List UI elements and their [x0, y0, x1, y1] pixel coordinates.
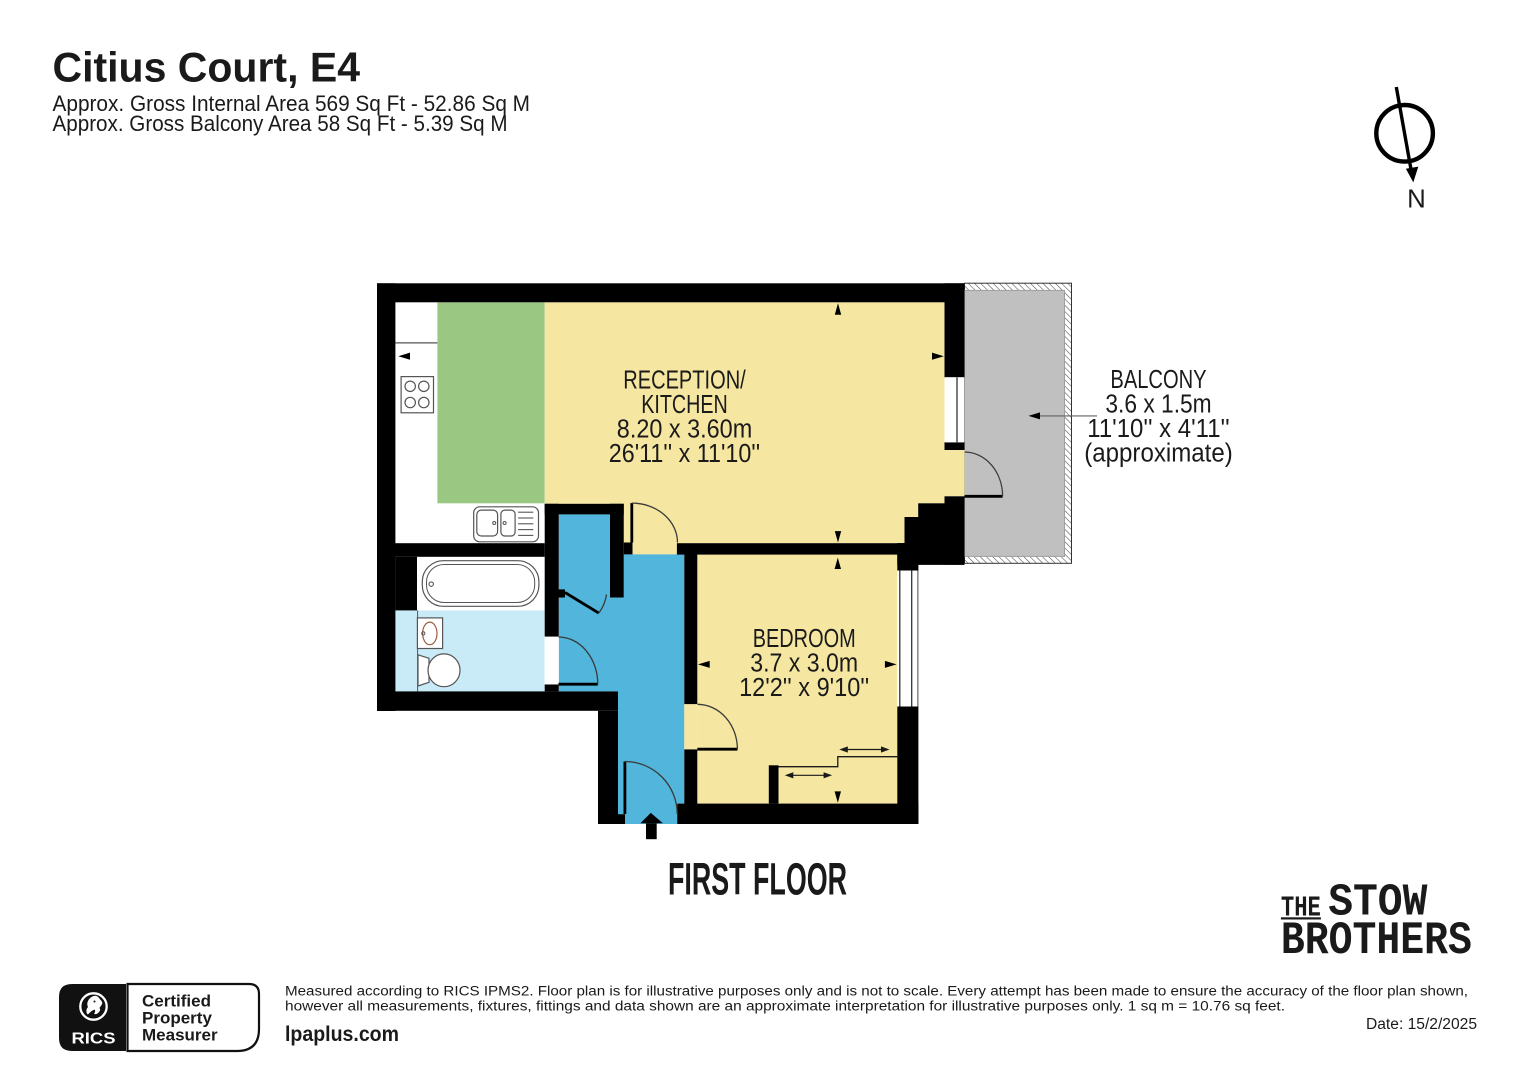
svg-text:Measurer: Measurer — [142, 1026, 218, 1045]
svg-text:Citius Court, E4: Citius Court, E4 — [53, 44, 361, 91]
svg-text:RICS: RICS — [72, 1031, 116, 1048]
svg-text:12'2'' x 9'10'': 12'2'' x 9'10'' — [739, 674, 869, 702]
svg-text:Date: 15/2/2025: Date: 15/2/2025 — [1366, 1016, 1477, 1033]
svg-text:N: N — [1407, 185, 1426, 213]
svg-text:however all measurements, fixt: however all measurements, fixtures, fitt… — [285, 999, 1285, 1015]
svg-text:BROTHERS: BROTHERS — [1281, 914, 1472, 967]
svg-text:FIRST FLOOR: FIRST FLOOR — [668, 854, 847, 905]
svg-text:26'11'' x 11'10'': 26'11'' x 11'10'' — [609, 440, 760, 468]
svg-text:Approx. Gross Balcony Area 58: Approx. Gross Balcony Area 58 Sq Ft - 5.… — [53, 111, 508, 136]
svg-text:Measured according to RICS IPM: Measured according to RICS IPMS2. Floor … — [285, 984, 1468, 1000]
svg-text:lpaplus.com: lpaplus.com — [285, 1022, 399, 1046]
svg-text:(approximate): (approximate) — [1084, 439, 1233, 467]
